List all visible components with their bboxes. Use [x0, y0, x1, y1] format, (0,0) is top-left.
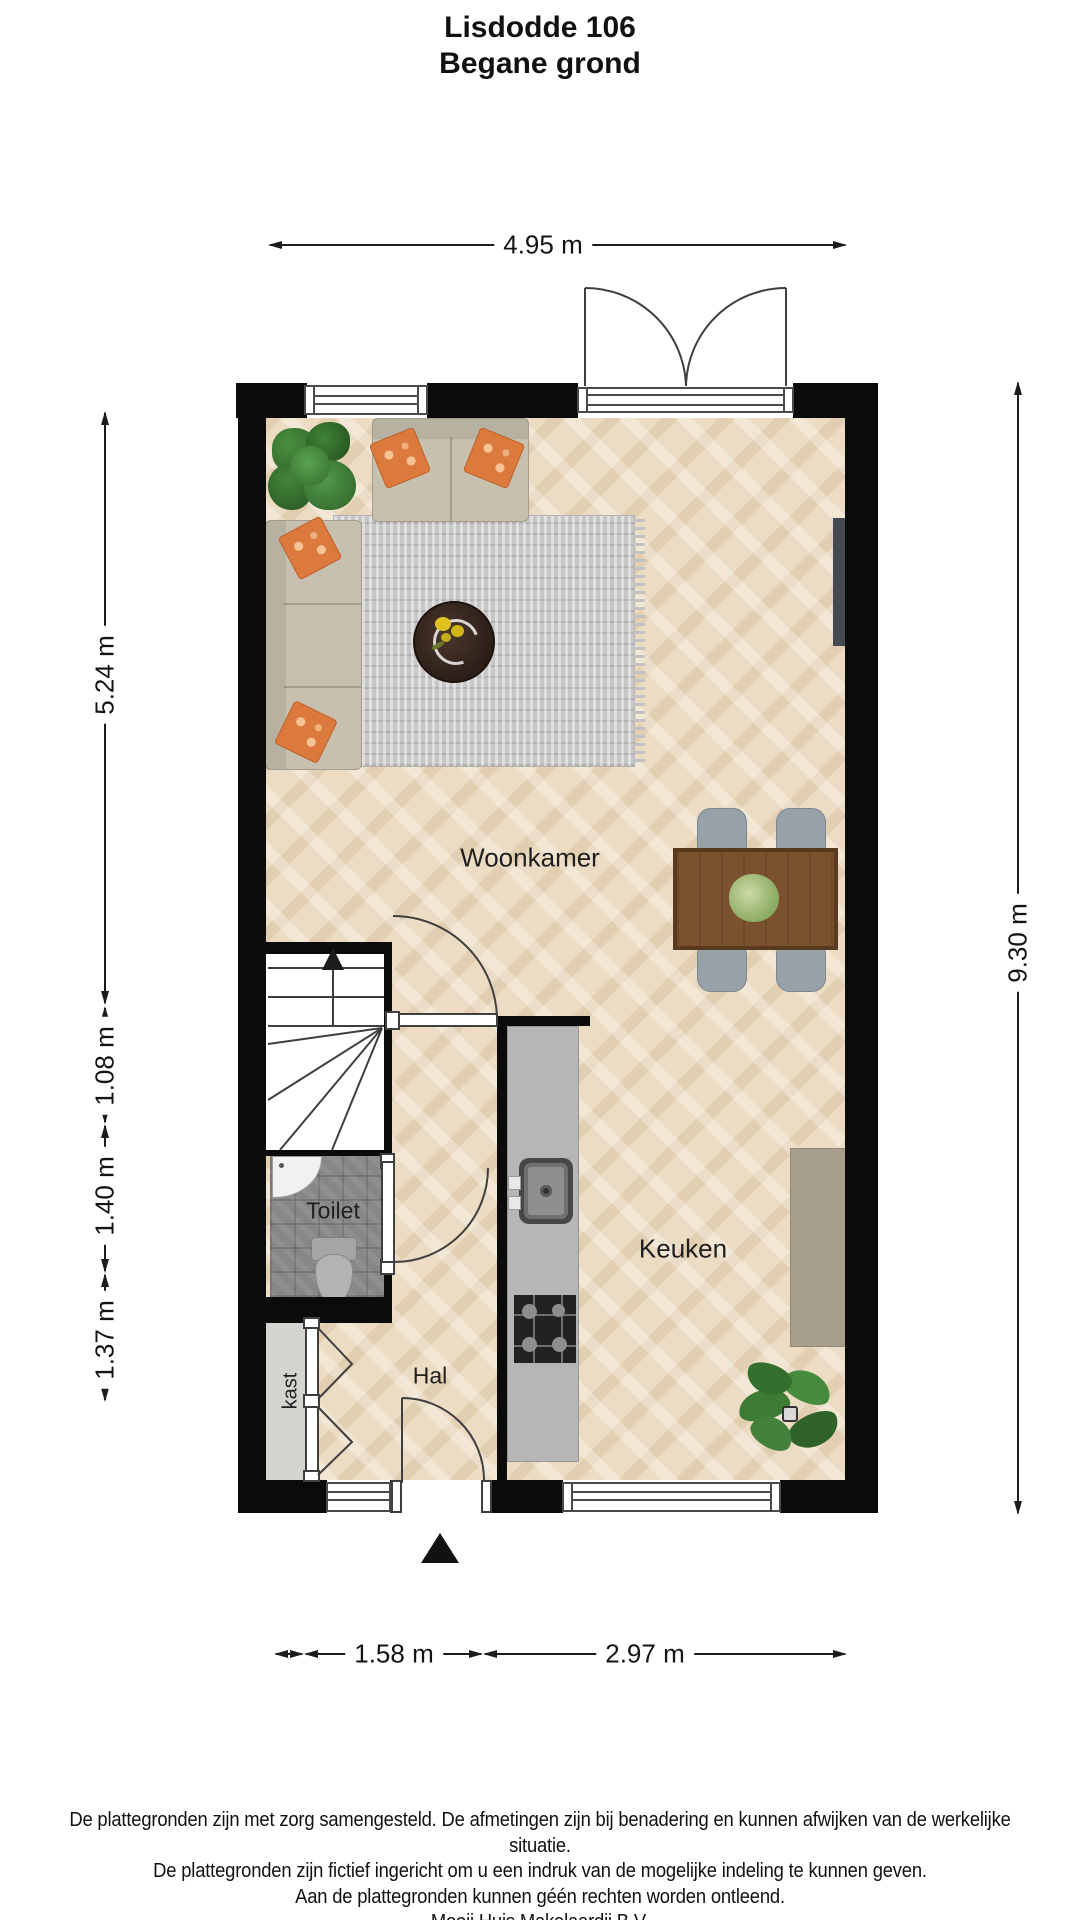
- dining-chair: [776, 948, 826, 992]
- kitchen-cabinet: [790, 1148, 847, 1347]
- tv-panel: [833, 518, 845, 646]
- kitchen-sink: [519, 1158, 573, 1224]
- french-door-swing: [585, 288, 786, 386]
- dim-left-4: 1.37 m: [89, 1291, 122, 1389]
- coffee-table: [413, 601, 495, 683]
- coffee-table-flowers: [451, 625, 464, 637]
- entrance-arrow-icon: [421, 1533, 459, 1563]
- window-bottom-kitchen: [563, 1483, 780, 1511]
- wall-stair-right: [384, 942, 392, 1297]
- plant-living-room: [266, 420, 364, 520]
- dining-table: [673, 848, 838, 950]
- wall-bottom: [483, 1480, 563, 1513]
- table-centerpiece-plant: [729, 874, 779, 922]
- stairwell-area: [266, 954, 384, 1150]
- wall-toilet-closet: [266, 1297, 392, 1323]
- dim-bottom-1: 1.58 m: [345, 1638, 443, 1671]
- title-address: Lisdodde 106: [0, 10, 1080, 46]
- sofa-seam: [284, 686, 361, 688]
- title-floor: Begane grond: [0, 46, 1080, 82]
- wall-top: [427, 383, 578, 418]
- agency-name: Mooij Huis Makelaardij B.V.: [43, 1910, 1037, 1920]
- dim-right: 9.30 m: [1002, 894, 1035, 992]
- burner: [552, 1337, 567, 1352]
- sofa-seam: [284, 603, 361, 605]
- dim-left-1: 5.24 m: [89, 626, 122, 724]
- plant-kitchen: [736, 1362, 840, 1468]
- cooktop: [514, 1295, 576, 1363]
- burner: [552, 1304, 565, 1317]
- sink-handle: [508, 1176, 521, 1190]
- plant-foliage: [290, 446, 330, 486]
- disclaimer-line: De plattegronden zijn fictief ingericht …: [43, 1859, 1037, 1885]
- page-title: Lisdodde 106 Begane grond: [0, 10, 1080, 82]
- footer-disclaimer: De plattegronden zijn met zorg samengest…: [43, 1808, 1037, 1920]
- burner: [522, 1304, 537, 1319]
- room-label-closet: kast: [280, 1373, 303, 1410]
- wall-stair-top: [266, 942, 392, 954]
- plant-pot: [782, 1406, 798, 1422]
- wall-bottom: [390, 1480, 399, 1513]
- dim-bottom-2: 2.97 m: [596, 1638, 694, 1671]
- wall-bottom: [780, 1480, 878, 1513]
- disclaimer-line: Aan de plattegronden kunnen géén rechten…: [43, 1885, 1037, 1911]
- french-door-frame: [578, 388, 793, 412]
- dim-left-3: 1.40 m: [89, 1147, 122, 1245]
- dining-chair: [697, 948, 747, 992]
- wall-bottom: [238, 1480, 327, 1513]
- dim-left-2: 1.08 m: [89, 1017, 122, 1115]
- coffee-table-flowers: [435, 617, 451, 631]
- kitchen-counter: [507, 1026, 579, 1462]
- room-label-kitchen: Keuken: [639, 1234, 727, 1265]
- rug-fringe: [633, 518, 645, 762]
- sink-faucet: [540, 1185, 552, 1197]
- room-label-hall: Hal: [413, 1363, 448, 1390]
- sink-handle: [508, 1196, 521, 1210]
- room-label-toilet: Toilet: [306, 1198, 360, 1225]
- wall-hall-stub: [497, 1016, 590, 1026]
- dim-top: 4.95 m: [494, 229, 592, 262]
- window-top: [305, 386, 427, 414]
- dining-chair: [697, 808, 747, 852]
- room-label-living: Woonkamer: [460, 843, 600, 874]
- disclaimer-line: De plattegronden zijn met zorg samengest…: [43, 1808, 1037, 1859]
- dining-chair: [776, 808, 826, 852]
- sofa-seam: [450, 437, 452, 521]
- wall-left: [238, 383, 266, 1513]
- window-bottom-hall: [327, 1483, 390, 1511]
- floorplan-page: Lisdodde 106 Begane grond: [0, 0, 1080, 1920]
- wall-stair-toilet: [266, 1150, 384, 1156]
- burner: [522, 1337, 537, 1352]
- wall-right: [845, 383, 878, 1513]
- sink-drain: [279, 1163, 284, 1168]
- wall-hall-kitchen: [497, 1020, 507, 1480]
